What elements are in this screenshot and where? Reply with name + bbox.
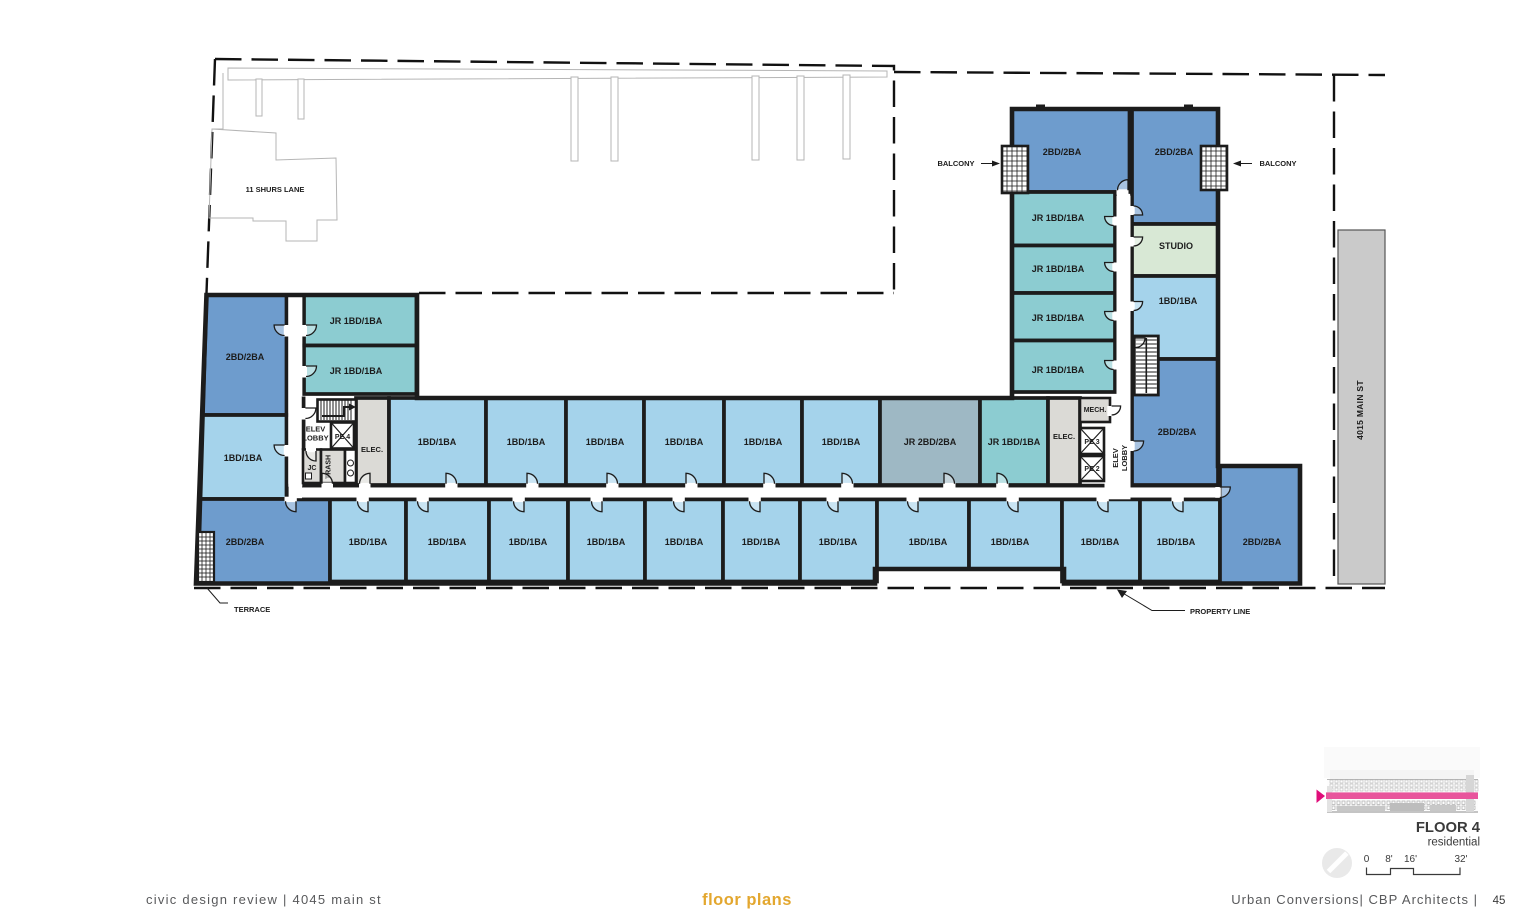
svg-text:1BD/1BA: 1BD/1BA [744,437,783,447]
svg-text:MECH.: MECH. [1084,407,1107,414]
svg-text:JR 1BD/1BA: JR 1BD/1BA [1032,313,1085,323]
svg-text:PE 3: PE 3 [1084,439,1099,446]
svg-text:1BD/1BA: 1BD/1BA [507,437,546,447]
svg-text:1BD/1BA: 1BD/1BA [822,437,861,447]
svg-text:1BD/1BA: 1BD/1BA [509,537,548,547]
svg-text:PE 4: PE 4 [335,434,350,441]
svg-text:STUDIO: STUDIO [1159,241,1193,251]
svg-text:11 SHURS LANE: 11 SHURS LANE [246,185,305,194]
svg-text:FLOOR 4: FLOOR 4 [1416,820,1481,836]
svg-text:JC: JC [308,465,317,472]
svg-text:1BD/1BA: 1BD/1BA [224,453,263,463]
svg-text:JR 1BD/1BA: JR 1BD/1BA [988,437,1041,447]
svg-text:1BD/1BA: 1BD/1BA [1081,537,1120,547]
svg-text:1BD/1BA: 1BD/1BA [991,537,1030,547]
svg-text:2BD/2BA: 2BD/2BA [1043,147,1082,157]
svg-text:1BD/1BA: 1BD/1BA [1157,537,1196,547]
svg-text:JR 1BD/1BA: JR 1BD/1BA [330,366,383,376]
svg-text:TERRACE: TERRACE [234,605,270,614]
svg-text:32': 32' [1454,854,1467,865]
svg-text:1BD/1BA: 1BD/1BA [586,437,625,447]
svg-text:JR 1BD/1BA: JR 1BD/1BA [330,316,383,326]
svg-text:LOBBY: LOBBY [1120,445,1129,471]
svg-text:JR 2BD/2BA: JR 2BD/2BA [904,437,957,447]
svg-text:4015 MAIN ST: 4015 MAIN ST [1355,380,1365,440]
svg-text:residential: residential [1428,837,1480,849]
svg-text:ELEC.: ELEC. [1053,432,1075,441]
svg-text:1BD/1BA: 1BD/1BA [742,537,781,547]
svg-text:JR 1BD/1BA: JR 1BD/1BA [1032,365,1085,375]
svg-text:2BD/2BA: 2BD/2BA [1243,537,1282,547]
svg-text:1BD/1BA: 1BD/1BA [1159,296,1198,306]
svg-text:PROPERTY LINE: PROPERTY LINE [1190,607,1250,616]
svg-text:PE 2: PE 2 [1084,466,1099,473]
svg-text:ELEV: ELEV [1111,448,1120,468]
svg-text:2BD/2BA: 2BD/2BA [226,352,265,362]
svg-text:civic design review | 4045 mai: civic design review | 4045 main st [146,892,382,907]
svg-text:2BD/2BA: 2BD/2BA [1155,147,1194,157]
svg-text:45: 45 [1493,895,1506,907]
svg-text:1BD/1BA: 1BD/1BA [665,437,704,447]
svg-text:1BD/1BA: 1BD/1BA [665,537,704,547]
svg-text:JR 1BD/1BA: JR 1BD/1BA [1032,264,1085,274]
svg-text:floor plans: floor plans [702,891,792,909]
svg-text:BALCONY: BALCONY [937,159,974,168]
svg-text:2BD/2BA: 2BD/2BA [1158,427,1197,437]
svg-text:16': 16' [1404,854,1417,865]
svg-text:LOBBY: LOBBY [302,434,328,443]
svg-text:8': 8' [1385,854,1393,865]
svg-text:1BD/1BA: 1BD/1BA [428,537,467,547]
svg-text:Urban Conversions| CBP Archite: Urban Conversions| CBP Architects | [1231,892,1478,907]
svg-text:ELEC.: ELEC. [361,445,383,454]
svg-text:1BD/1BA: 1BD/1BA [349,537,388,547]
svg-text:2BD/2BA: 2BD/2BA [226,537,265,547]
svg-text:1BD/1BA: 1BD/1BA [587,537,626,547]
svg-text:1BD/1BA: 1BD/1BA [909,537,948,547]
svg-text:ELEV: ELEV [306,425,326,434]
svg-text:1BD/1BA: 1BD/1BA [418,437,457,447]
svg-text:BALCONY: BALCONY [1259,159,1296,168]
svg-text:JR 1BD/1BA: JR 1BD/1BA [1032,213,1085,223]
svg-text:0: 0 [1364,854,1370,865]
svg-text:1BD/1BA: 1BD/1BA [819,537,858,547]
